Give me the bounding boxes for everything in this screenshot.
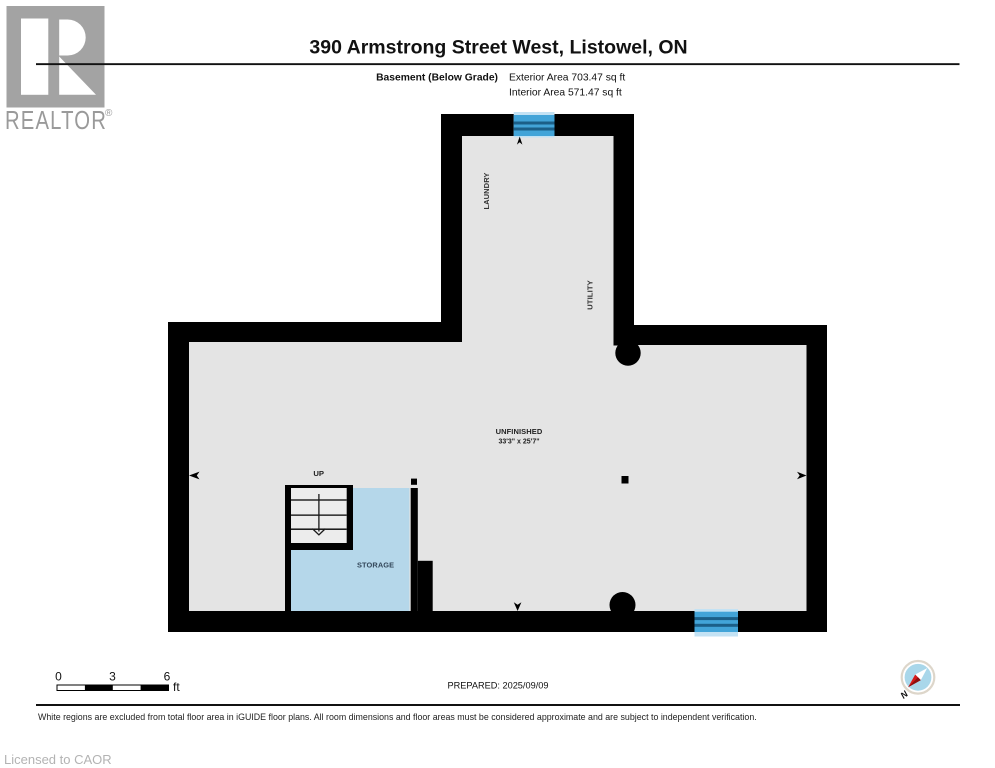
svg-text:ft: ft — [173, 680, 180, 694]
svg-text:0: 0 — [55, 670, 62, 684]
svg-text:Basement (Below Grade): Basement (Below Grade) — [376, 73, 498, 84]
svg-text:PREPARED: 2025/09/09: PREPARED: 2025/09/09 — [448, 681, 549, 691]
svg-text:Exterior Area 703.47 sq ft: Exterior Area 703.47 sq ft — [509, 73, 625, 84]
svg-text:LAUNDRY: LAUNDRY — [482, 172, 491, 209]
svg-text:6: 6 — [164, 670, 171, 684]
svg-text:UP: UP — [313, 469, 324, 478]
svg-text:UNFINISHED: UNFINISHED — [496, 427, 543, 436]
svg-text:®: ® — [105, 108, 113, 119]
svg-text:Licensed to CAOR: Licensed to CAOR — [4, 752, 112, 767]
svg-text:33'3" x 25'7": 33'3" x 25'7" — [498, 438, 539, 445]
svg-text:3: 3 — [109, 670, 116, 684]
svg-text:390 Armstrong Street West, Lis: 390 Armstrong Street West, Listowel, ON — [309, 37, 687, 59]
svg-text:Interior Area 571.47 sq ft: Interior Area 571.47 sq ft — [509, 87, 622, 98]
svg-text:REALTOR: REALTOR — [5, 106, 107, 135]
svg-text:UTILITY: UTILITY — [586, 280, 595, 310]
svg-text:STORAGE: STORAGE — [357, 560, 394, 569]
svg-text:White regions are excluded fro: White regions are excluded from total fl… — [38, 712, 757, 722]
